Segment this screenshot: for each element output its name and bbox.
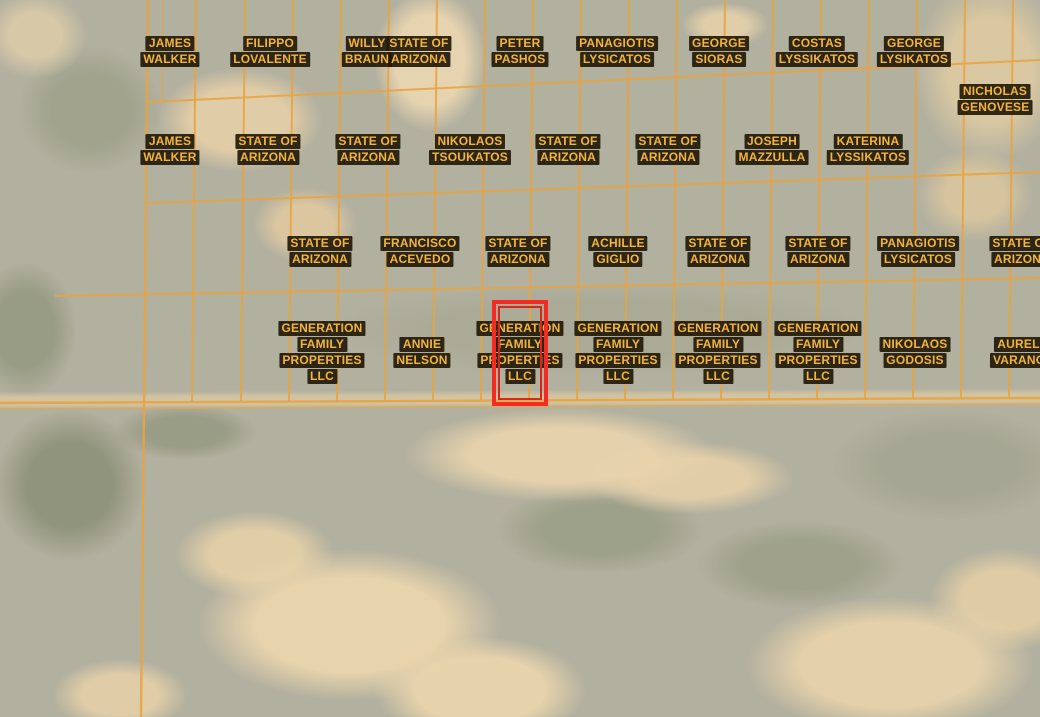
parcel-owner-label-line: JAMES (146, 36, 194, 51)
parcel-owner-label[interactable]: JAMESWALKER (140, 133, 199, 165)
parcel-owner-label[interactable]: FILIPPOLOVALENTE (230, 35, 310, 67)
parcel-owner-label-line: STATE OF (335, 134, 400, 149)
parcel-owner-label-line: FAMILY (593, 337, 643, 352)
parcel-owner-label-line: LOVALENTE (230, 52, 310, 67)
parcel-owner-label[interactable]: STATE OFARIZONA (287, 235, 352, 267)
parcel-owner-label-line: ARIZONA (237, 150, 299, 165)
parcel-owner-label-line: LYSICATOS (580, 52, 654, 67)
parcel-owner-label[interactable]: WILLYBRAUN (342, 35, 392, 67)
parcel-owner-label[interactable]: JAMESWALKER (140, 35, 199, 67)
parcel-owner-label[interactable]: STATE OFARIZONA (635, 133, 700, 165)
parcel-owner-label[interactable]: STATE OFARIZONA (535, 133, 600, 165)
parcel-owner-label-line: GENERATION (774, 321, 861, 336)
parcel-owner-label-line: ARIZONA (991, 252, 1040, 267)
parcel-owner-label-line: LLC (307, 369, 337, 384)
parcel-owner-label-line: GODOSIS (883, 353, 946, 368)
parcel-owner-label[interactable]: GEORGESIORAS (689, 35, 749, 67)
parcel-owner-label[interactable]: STATE OFARIZONA (335, 133, 400, 165)
parcel-owner-label-line: ARIZONA (537, 150, 599, 165)
parcel-owner-label-line: STATE OF (785, 236, 850, 251)
parcel-owner-label-line: STATE OF (989, 236, 1040, 251)
parcel-owner-label-line: ARIZONA (687, 252, 749, 267)
parcel-owner-label-line: ACHILLE (588, 236, 647, 251)
parcel-owner-label[interactable]: FRANCISCOACEVEDO (380, 235, 459, 267)
parcel-owner-label-line: STATE OF (235, 134, 300, 149)
selected-parcel-highlight[interactable] (492, 300, 548, 406)
parcel-owner-label-line: NIKOLAOS (435, 134, 506, 149)
parcel-owner-label-line: FAMILY (693, 337, 743, 352)
parcel-owner-label-line: BRAUN (342, 52, 392, 67)
parcel-owner-label-line: FAMILY (297, 337, 347, 352)
parcel-owner-label-line: STATE OF (685, 236, 750, 251)
parcel-owner-label[interactable]: STATE OFARIZONA (386, 35, 451, 67)
parcel-owner-label[interactable]: GENERATIONFAMILYPROPERTIESLLC (774, 320, 861, 384)
parcel-owner-label-line: VARANGIS (990, 353, 1040, 368)
parcel-owner-label[interactable]: GEORGELYSIKATOS (877, 35, 951, 67)
parcel-owner-label[interactable]: JOSEPHMAZZULLA (736, 133, 809, 165)
parcel-owner-label[interactable]: AURELIOVARANGIS (990, 336, 1040, 368)
parcel-owner-label-line: ACEVEDO (387, 252, 454, 267)
parcel-owner-label[interactable]: STATE OFARIZONA (685, 235, 750, 267)
parcel-owner-label-line: NICHOLAS (960, 84, 1030, 99)
parcel-owner-label-line: LYSICATOS (881, 252, 955, 267)
parcel-owner-label-line: GEORGE (884, 36, 944, 51)
parcel-owner-label-line: SIORAS (692, 52, 745, 67)
parcel-owner-label-line: LLC (803, 369, 833, 384)
parcel-owner-label[interactable]: KATERINALYSSIKATOS (827, 133, 909, 165)
parcel-owner-label-line: ARIZONA (337, 150, 399, 165)
parcel-owner-label[interactable]: COSTASLYSSIKATOS (776, 35, 858, 67)
parcel-owner-label-line: ARIZONA (787, 252, 849, 267)
parcel-owner-label-line: AURELIO (994, 337, 1040, 352)
parcel-owner-label-line: GENERATION (674, 321, 761, 336)
parcel-owner-label-line: PROPERTIES (775, 353, 860, 368)
parcel-owner-label-line: GENERATION (278, 321, 365, 336)
parcel-owner-label-line: PROPERTIES (279, 353, 364, 368)
parcel-owner-label-line: KATERINA (834, 134, 903, 149)
parcel-owner-label-line: LYSSIKATOS (827, 150, 909, 165)
parcel-owner-label-line: WILLY (345, 36, 388, 51)
parcel-owner-label-line: ARIZONA (388, 52, 450, 67)
parcel-owner-label-line: GENOVESE (958, 100, 1033, 115)
parcel-owner-label-line: NELSON (393, 353, 450, 368)
parcel-owner-label-line: FILIPPO (243, 36, 297, 51)
parcel-owner-label[interactable]: GENERATIONFAMILYPROPERTIESLLC (674, 320, 761, 384)
parcel-owner-label[interactable]: NIKOLAOSTSOUKATOS (429, 133, 511, 165)
parcel-owner-label-line: WALKER (140, 52, 199, 67)
parcel-owner-label[interactable]: STATE OFARIZONA (989, 235, 1040, 267)
parcel-owner-label-line: LLC (603, 369, 633, 384)
parcel-owner-label-line: STATE OF (635, 134, 700, 149)
parcel-owner-label-line: STATE OF (386, 36, 451, 51)
parcel-owner-label-line: PANAGIOTIS (576, 36, 658, 51)
parcel-owner-label-line: STATE OF (287, 236, 352, 251)
parcel-owner-label-line: WALKER (140, 150, 199, 165)
parcel-owner-label-line: PANAGIOTIS (877, 236, 959, 251)
parcel-owner-label-line: PROPERTIES (675, 353, 760, 368)
parcel-owner-label-line: NIKOLAOS (880, 337, 951, 352)
parcel-owner-label-line: PETER (496, 36, 543, 51)
map-canvas[interactable]: JAMESWALKERFILIPPOLOVALENTEWILLYBRAUNSTA… (0, 0, 1040, 717)
parcel-owner-label[interactable]: NIKOLAOSGODOSIS (880, 336, 951, 368)
parcel-owner-label[interactable]: ANNIENELSON (393, 336, 450, 368)
parcel-owner-label-line: LLC (703, 369, 733, 384)
parcel-owner-label[interactable]: STATE OFARIZONA (235, 133, 300, 165)
parcel-owner-label[interactable]: PANAGIOTISLYSICATOS (877, 235, 959, 267)
selected-parcel-highlight-inner (498, 306, 542, 400)
parcel-owner-label-line: JAMES (146, 134, 194, 149)
parcel-owner-label-line: FRANCISCO (380, 236, 459, 251)
parcel-owner-label-line: COSTAS (789, 36, 845, 51)
parcel-owner-label-line: LYSIKATOS (877, 52, 951, 67)
parcel-owner-label[interactable]: STATE OFARIZONA (485, 235, 550, 267)
parcel-owner-label-line: GENERATION (574, 321, 661, 336)
parcel-owner-label-line: JOSEPH (744, 134, 800, 149)
parcel-owner-label-line: ARIZONA (289, 252, 351, 267)
parcel-owner-label[interactable]: ACHILLEGIGLIO (588, 235, 647, 267)
parcel-owner-label[interactable]: GENERATIONFAMILYPROPERTIESLLC (574, 320, 661, 384)
parcel-owner-label[interactable]: STATE OFARIZONA (785, 235, 850, 267)
parcel-owner-label-line: ARIZONA (487, 252, 549, 267)
parcel-owner-label-line: GIGLIO (593, 252, 642, 267)
parcel-owner-label[interactable]: PETERPASHOS (492, 35, 549, 67)
parcel-owner-label-line: MAZZULLA (736, 150, 809, 165)
parcel-owner-label-line: TSOUKATOS (429, 150, 511, 165)
parcel-owner-label-line: FAMILY (793, 337, 843, 352)
parcel-owner-label-line: STATE OF (485, 236, 550, 251)
parcel-owner-label-line: ANNIE (400, 337, 444, 352)
parcel-owner-label-line: LYSSIKATOS (776, 52, 858, 67)
parcel-owner-label-line: ARIZONA (637, 150, 699, 165)
parcel-owner-label[interactable]: PANAGIOTISLYSICATOS (576, 35, 658, 67)
parcel-owner-label-line: STATE OF (535, 134, 600, 149)
parcel-owner-label[interactable]: GENERATIONFAMILYPROPERTIESLLC (278, 320, 365, 384)
parcel-owner-label-line: PROPERTIES (575, 353, 660, 368)
parcel-owner-label[interactable]: NICHOLASGENOVESE (958, 83, 1033, 115)
parcel-owner-label-line: GEORGE (689, 36, 749, 51)
parcel-owner-label-line: PASHOS (492, 52, 549, 67)
